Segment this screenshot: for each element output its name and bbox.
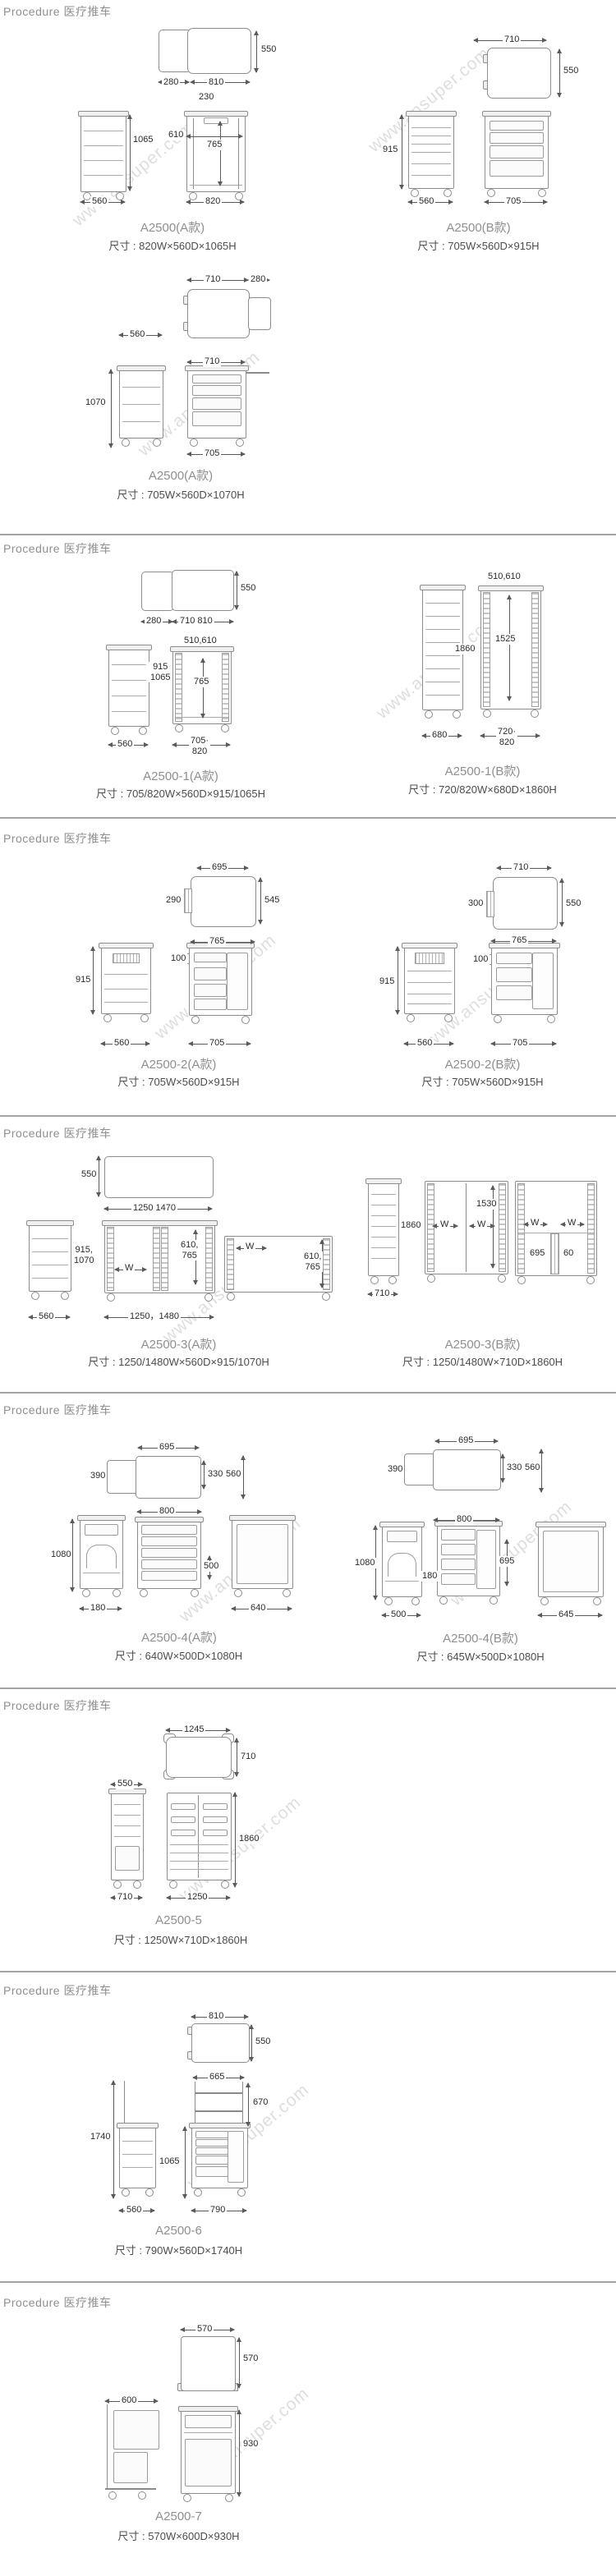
cart-top-board [108,1789,146,1794]
caster-icon [103,1014,112,1022]
drawer [441,1573,476,1585]
dim-label: 500 [202,1561,220,1572]
drawer [194,999,227,1010]
caster-icon [153,439,161,447]
model-label: A2500-5 [123,1913,234,1927]
tray [203,1830,228,1836]
size-label: 尺寸 : 720/820W×680D×1860H [382,781,583,797]
section-header: Procedure 医疗推车 [3,1125,111,1141]
caster-icon [538,189,546,197]
dim-label: 710 [116,1892,134,1903]
lower-bin [113,2452,148,2483]
dim-label: 1525 [494,634,517,645]
dim-line [562,879,563,926]
caster-icon [494,1015,502,1023]
caster-icon [322,1293,330,1301]
dim-label: 705 [208,1038,226,1049]
base-bar [105,2488,156,2490]
caster-icon [483,709,491,718]
caster-icon [221,1880,229,1889]
front-cart-drawing [491,947,558,1015]
caster-icon [370,1276,379,1284]
dim-label: 560 [523,1462,541,1473]
drawer [490,160,544,177]
drawer [441,1559,476,1570]
dim-label: 545 [263,895,281,906]
dim-line [220,122,221,186]
caster-icon [586,1276,595,1284]
caster-icon [388,1276,397,1284]
drawer [496,985,532,1000]
tray-line [425,603,460,604]
tray-line [114,1804,140,1805]
shelf-line [190,185,242,186]
dim-label: 610 [167,130,185,140]
dim-label: 765 [510,935,528,946]
dim-label: 560 [90,196,108,207]
drawer [141,1525,197,1535]
top-view-drawing [104,1156,214,1198]
model-label: A2500-6 [123,2224,234,2238]
top-view-drawing [493,877,558,930]
drawer [194,984,227,997]
drawer [490,121,544,131]
tray-line [411,175,451,176]
dim-label: 560 [116,739,134,750]
drawer [195,2139,228,2147]
dim-label: 705 [203,448,221,459]
caster-icon [439,1596,448,1605]
dim-label: 1250，1480 [128,1311,181,1322]
front-cart-drawing [189,947,252,1016]
dim-label: 390 [386,1464,404,1475]
dim-label: W [244,1242,255,1252]
dim-label: 300 [467,898,485,909]
cart-top-board [102,1220,218,1226]
size-label: 尺寸 : 1250W×710D×1860H [99,1931,263,1947]
caster-icon [237,2188,246,2197]
caster-icon [241,1016,250,1024]
cart-top-board [99,943,154,948]
wide-rack-drawing [515,1181,597,1276]
dim-label: 1080 [49,1550,72,1560]
dim-label: 710 810 [178,616,214,627]
caster-icon [122,439,130,447]
handle-recess [204,117,228,124]
dim-label: 765 [192,677,210,687]
shelf-line [122,2141,153,2142]
model-label: A2500-3(B款) [415,1335,550,1352]
slat-line [170,1844,228,1845]
dim-line [203,659,204,718]
shelf-line [122,2167,153,2168]
section-header: Procedure 医疗推车 [3,1697,111,1714]
shelf-line [112,696,146,696]
dim-label: 915 [74,975,92,985]
slotted-column [205,1227,213,1291]
slotted-column [107,1227,114,1291]
tray-line [371,1258,396,1259]
section-a2500-7: Procedure 医疗推车 570 570 600 930 A2500-7 尺… [0,2281,616,2576]
tray-line [371,1205,396,1205]
dim-line [204,1461,205,1489]
tray [203,1803,228,1810]
caster-icon [194,2188,202,2197]
dim-label: 280 [162,77,180,88]
model-label: A2500(A款) [111,218,234,236]
section-header: Procedure 医疗推车 [3,1402,111,1418]
cabinet-door [543,1531,599,1592]
dim-label: 1065 [158,2156,181,2167]
dim-label: 645 [557,1609,575,1620]
tray-rack-drawing [480,590,541,709]
dim-line [130,115,131,191]
center-post [198,1795,199,1878]
dim-label: 695 [210,862,228,873]
top-view-drawing [433,1449,501,1490]
dim-label: 1860 [399,1220,422,1231]
dim-line [559,49,560,97]
caster-icon [190,439,198,447]
dim-label: 765 [208,936,226,947]
lower-box [185,2439,232,2486]
dim-label: 60 [562,1248,575,1259]
slotted-column [517,1183,525,1274]
drawer [141,1571,197,1581]
dim-label: 510,610 [182,636,218,646]
section-a2500-5: Procedure 医疗推车 1245 710 550 710 [0,1687,616,1971]
cart-top-board [106,645,152,650]
caster-icon [205,1293,213,1302]
dim-label: 390 [89,1471,107,1481]
dim-label: 550 [80,1169,98,1180]
bedside-cart-drawing [80,1519,123,1589]
dim-label: 180 [421,1571,439,1582]
size-label: 尺寸 : 570W×600D×930H [107,2528,251,2543]
front-cart-drawing [191,2127,248,2188]
slotted-column [227,1238,234,1290]
size-label: 尺寸 : 820W×560D×1065H [99,237,246,253]
dim-label: 230 [197,92,215,103]
front-cart-drawing [186,115,246,192]
side-cart-drawing [408,115,454,189]
dim-label: 810 [207,2011,225,2022]
dim-label: 610, 765 [179,1240,200,1260]
dim-line [260,878,261,924]
handle-hatch [184,889,192,913]
cart-top-board [365,1178,402,1184]
drawer [195,2147,228,2155]
caster-icon [407,1014,415,1022]
frame-post [242,2082,243,2127]
drawer [141,1536,197,1546]
dim-label: 570 [241,2353,260,2364]
dim-label: 560 [416,1038,434,1049]
dim-line [251,2025,252,2061]
cabinet-cart-drawing [538,1526,604,1597]
dim-label: 500 [389,1609,407,1620]
drawer [192,374,241,383]
section-header: Procedure 医疗推车 [3,1982,111,1999]
side-cart-drawing [404,947,455,1014]
dim-label: 1530 [475,1199,498,1210]
dim-label: 1250 [186,1892,209,1903]
catalog-page: www.ansuper.com www.ansuper.com www.ansu… [0,0,616,2576]
cabinet-door [532,953,554,1009]
cart-top-board [420,585,466,590]
dim-label: 1860 [453,644,476,654]
caster-icon [384,1597,393,1605]
shelf-line [122,421,160,422]
shelf-line [84,131,123,131]
cabinet-cart-drawing [232,1519,293,1589]
cabinet-door [476,1530,496,1589]
caster-icon [191,1589,199,1597]
dim-label: 915 [381,145,399,155]
top-view-drawing [191,2023,250,2063]
cart-top-board [117,2123,159,2128]
cart-top-board [170,646,234,652]
cart-top-board [478,585,544,591]
model-label: A2500(A款) [119,466,242,484]
drawer-cart-drawing [137,1521,201,1589]
caster-icon [122,2188,130,2197]
caster-icon [225,2494,233,2502]
tray-line [407,971,452,971]
dim-label: 680 [430,730,448,741]
model-label: A2500-7 [123,2509,234,2523]
dim-label: 720· 820 [496,727,517,747]
dim-line [239,2410,240,2496]
drawer [194,967,227,980]
caster-icon [547,1015,555,1023]
section-header: Procedure 医疗推车 [3,3,111,20]
dim-label: 100 [169,953,187,964]
dim-line [93,947,94,1014]
drawer [195,2131,228,2138]
dim-line [398,947,398,1014]
dim-label: 330 [505,1462,523,1473]
tray-line [407,982,452,983]
tray-line [425,682,460,682]
drawer [192,397,241,410]
dim-label: 930 [241,2439,260,2450]
dim-label: 180 [89,1603,107,1614]
tray-line [114,1815,140,1816]
model-label: A2500-2(A款) [115,1055,242,1072]
cabinet-door [237,1524,288,1584]
caster-icon [82,1589,90,1597]
size-label: 尺寸 : 705/820W×560D×915/1065H [78,785,283,801]
slat-line [170,1853,228,1853]
dim-line [239,2338,240,2388]
caster-icon [453,710,461,719]
dim-label: 665 [208,2072,226,2082]
dim-line [503,1454,503,1482]
cross-bar [195,2110,242,2112]
tray [203,1816,228,1823]
dim-label: 695 [528,1248,546,1259]
tray-line [371,1194,396,1195]
caster-icon [107,1293,115,1302]
dim-label: W [439,1219,450,1230]
double-door-cabinet-drawing [167,1793,232,1880]
size-label: 尺寸 : 705W×560D×1070H [103,486,259,502]
tray-line [407,994,452,994]
size-label: 尺寸 : 705W×560D×915H [407,1073,559,1089]
tray-line [411,135,451,136]
dim-line [509,595,510,700]
dim-label: 550 [564,898,582,909]
drawer [496,953,532,964]
dim-line [185,2127,186,2198]
side-cart-drawing [108,649,149,727]
dim-line [99,1156,99,1196]
section-a2500-4: Procedure 医疗推车 695 390 330 560 800 1080 … [0,1392,616,1687]
model-label: A2500-4(B款) [415,1629,546,1646]
dim-label: W [123,1263,135,1274]
drawer [490,132,544,144]
dim-label: 550 [260,44,278,55]
tray-line [411,163,451,164]
shelf-line [32,1251,68,1252]
drawer-cart-drawing [437,1525,500,1596]
shelf-line [32,1278,68,1279]
section-a2500-1: Procedure 医疗推车 550 280 710 810 510,610 9… [0,534,616,817]
dim-label: 1860 [237,1834,260,1844]
dim-label: 610, 765 [302,1251,323,1272]
dim-label: 560 [417,196,435,207]
dim-label: 695 [498,1556,516,1567]
tray-line [411,127,451,128]
caster-icon [175,724,183,732]
tray-line [371,1237,396,1237]
caster-icon [427,1274,435,1283]
caster-icon [138,2491,146,2500]
dim-line [111,370,112,448]
drawer [185,2415,232,2428]
size-label: 尺寸 : 645W×500D×1080H [402,1648,559,1664]
cross-bar [195,2092,242,2094]
top-view-drawing [172,570,234,611]
dim-label: 510,610 [486,572,522,582]
push-handle [245,372,269,374]
shelf-line [84,175,123,176]
caster-icon [169,1880,177,1889]
dim-label: 560 [37,1311,55,1322]
dim-line [235,1793,236,1887]
model-label: A2500-1(A款) [107,767,255,784]
shelf-line [184,2432,232,2433]
front-cart-drawing [181,2410,236,2494]
dim-line [402,115,402,189]
caster-icon [108,2491,117,2500]
dim-label: 695 [158,1442,176,1453]
dim-label: 710 [512,862,530,873]
dim-label: 640 [249,1603,267,1614]
cart-top-board [229,1515,296,1521]
drawer [490,145,544,158]
tray-line [371,1215,396,1216]
tray-line [425,642,460,643]
section-header: Procedure 医疗推车 [3,830,111,847]
cart-top-board [77,1515,126,1521]
bin [115,1846,140,1871]
slotted-column [175,653,182,722]
shelf-line [83,1573,120,1573]
caster-icon [531,709,539,718]
front-cart-drawing [187,370,246,439]
dim-label: 560 [125,2205,143,2216]
section-a2500-6: Procedure 医疗推车 810 550 665 1740 560 670 [0,1971,616,2281]
dim-label: 100 [471,954,490,965]
slotted-column [222,653,229,722]
drawer [441,1529,476,1541]
side-cart-drawing [29,1224,71,1292]
dim-label: 915, 1070 [72,1245,95,1265]
caster-icon [221,724,229,732]
dim-label: 695 [457,1435,475,1446]
dim-label: 1080 [353,1558,376,1568]
open-compartment [388,1553,416,1577]
slotted-column [323,1238,330,1290]
dim-label: 280 [145,616,163,627]
tray-line [425,616,460,617]
tray [171,1816,195,1823]
dim-label: 710 [373,1288,391,1299]
cart-top-board [26,1220,74,1226]
dim-label: 560 [113,1038,131,1049]
size-label: 尺寸 : 1250/1480W×710D×1860H [390,1353,575,1369]
section-header: Procedure 医疗推车 [3,2294,111,2311]
side-rack-drawing [111,1793,144,1880]
dim-label: W [566,1218,577,1228]
caster-icon [490,1596,498,1605]
cart-top-board [117,365,166,371]
shelf-line [112,680,146,681]
cart-top-board [406,111,457,117]
caster-icon [183,2494,191,2502]
slotted-column [587,1183,595,1274]
dim-label: 550 [562,66,580,76]
section-a2500-3: Procedure 医疗推车 550 1250 1470 915, 1070 5… [0,1115,616,1392]
dim-label: 800 [158,1506,176,1517]
model-label: A2500-1(B款) [411,762,554,779]
dim-label: 560 [224,1469,242,1480]
dim-label: 705 [504,196,522,207]
tray-line [425,629,460,630]
tray-line [371,1226,396,1227]
drawer [192,411,241,426]
dim-label: 670 [251,2097,269,2108]
top-view-drawing [159,30,191,72]
caster-icon [61,1292,69,1300]
dim-label: 810 [207,77,225,88]
bedside-cart-drawing [382,1526,422,1597]
dim-label: 705 [511,1038,529,1049]
tray [171,1830,195,1836]
shelf-line [32,1265,68,1265]
caster-icon [540,1597,549,1605]
center-post-hatch [550,1233,559,1274]
drawer [387,1531,417,1542]
tray-line [114,1825,140,1826]
size-label: 尺寸 : 705W×560D×915H [402,237,554,253]
top-view-extension [248,297,271,330]
tray [171,1803,195,1810]
dim-label: 820 [204,196,222,207]
caster-icon [425,710,433,719]
